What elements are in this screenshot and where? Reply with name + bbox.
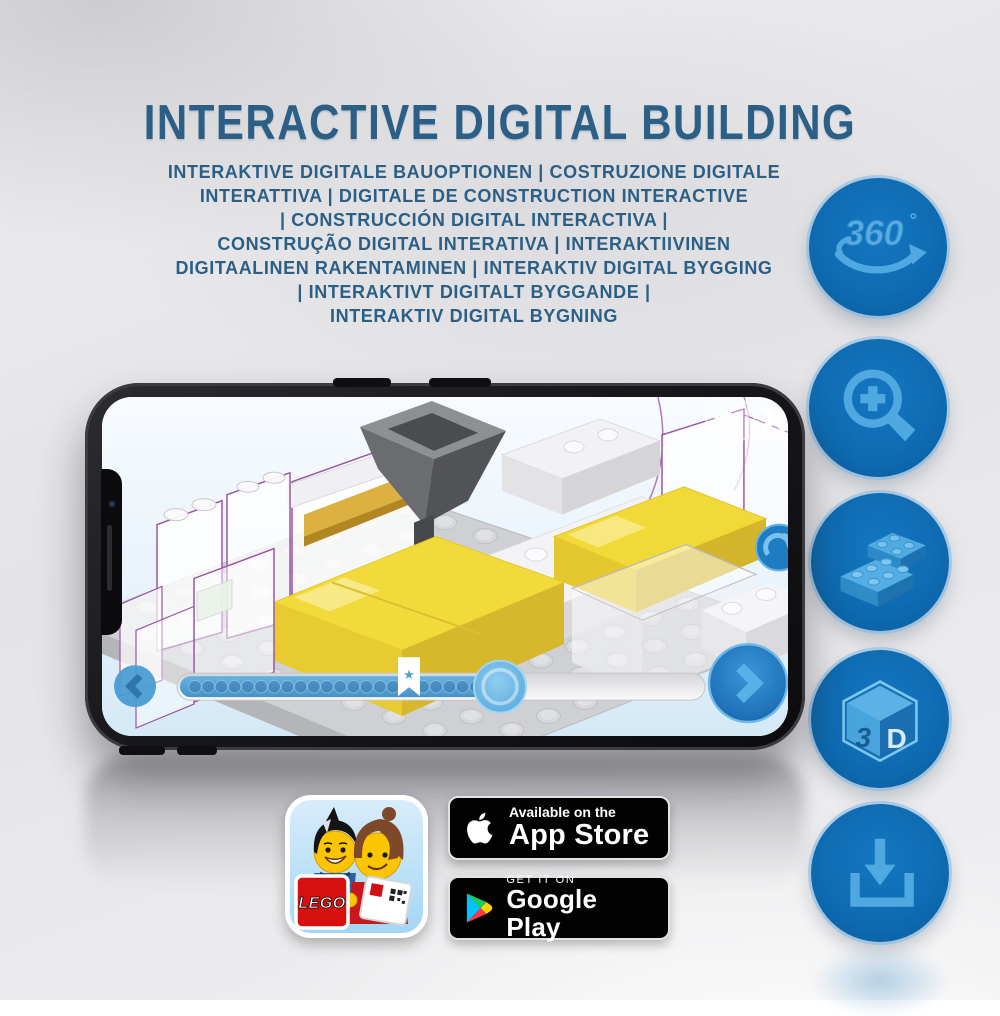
subtitle-line: | CONSTRUCCIÓN DIGITAL INTERACTIVA | (128, 208, 820, 232)
phone-reflection (85, 756, 805, 888)
3d-view-icon: 3 D (811, 650, 949, 788)
lego-bricks-icon (811, 493, 949, 631)
google-play-icon (462, 889, 495, 927)
lego-logo-text: LEGO (298, 895, 345, 912)
front-camera (109, 501, 115, 507)
slider-step-dot (456, 680, 469, 693)
phone: ★ (85, 383, 805, 750)
slider-thumb[interactable] (474, 661, 526, 713)
lego-logo: LEGO (296, 876, 348, 928)
lego-minifigures-art: LEGO (290, 800, 423, 933)
app-store-tagline: Available on the (509, 805, 649, 820)
power-button (333, 378, 391, 387)
download-glyph (828, 821, 932, 925)
360-text: 360 (844, 214, 903, 253)
app-store-name: App Store (509, 820, 649, 850)
slider-step-dot (360, 680, 373, 693)
slider-step-dot (294, 680, 307, 693)
icon-reflection (811, 946, 949, 1016)
close-button[interactable] (754, 399, 788, 439)
subtitle: INTERAKTIVE DIGITALE BAUOPTIONEN | COSTR… (128, 160, 820, 328)
slider-step-dot (308, 680, 321, 693)
slider-step-dot (242, 680, 255, 693)
back-button[interactable] (114, 665, 156, 707)
360-glyph: 360 ° (826, 195, 930, 299)
slider-step-dot (281, 680, 294, 693)
next-button[interactable] (709, 644, 787, 722)
bricks-glyph (828, 510, 932, 614)
slider-step-dot (268, 680, 281, 693)
settings-button[interactable] (706, 399, 748, 441)
slider-step-dot (374, 680, 387, 693)
slider-step-dots (189, 680, 496, 693)
google-play-badge[interactable]: GET IT ON Google Play (448, 876, 670, 940)
slider-step-dot (202, 680, 215, 693)
slider-step-dot (443, 680, 456, 693)
subtitle-line: DIGITAALINEN RAKENTAMINEN | INTERAKTIV D… (128, 256, 820, 280)
slider-step-dot (334, 680, 347, 693)
side-button (429, 378, 491, 387)
apple-icon (462, 807, 498, 849)
bookmark-star-icon: ★ (403, 667, 415, 682)
slider-step-dot (215, 680, 228, 693)
degree-text: ° (910, 209, 917, 230)
slider-step-dot (255, 680, 268, 693)
volume-button (119, 746, 165, 755)
girl-minifigure (343, 807, 412, 925)
slider-step-dot (430, 680, 443, 693)
3d-cube-glyph: 3 D (828, 667, 932, 771)
zoom-in-icon (809, 339, 947, 477)
slider-step-dot (228, 680, 241, 693)
subtitle-line: CONSTRUÇÃO DIGITAL INTERATIVA | INTERAKT… (128, 232, 820, 256)
subtitle-line: | INTERAKTIVT DIGITALT BYGGANDE | (128, 280, 820, 304)
cube-3-text: 3 (856, 722, 872, 753)
magnifier-glyph (826, 356, 930, 460)
360-rotation-icon: 360 ° (809, 178, 947, 316)
google-play-name: Google Play (506, 886, 656, 941)
cube-d-text: D (886, 723, 906, 754)
subtitle-line: INTERAKTIV DIGITAL BYGNING (128, 304, 820, 328)
volume-button (177, 746, 217, 755)
lego-app-icon[interactable]: LEGO (285, 795, 428, 938)
slider-step-dot (321, 680, 334, 693)
page-title: INTERACTIVE DIGITAL BUILDING (0, 94, 1000, 151)
slider-step-dot (387, 680, 400, 693)
page-background: INTERACTIVE DIGITAL BUILDING INTERAKTIVE… (0, 0, 1000, 1000)
instructions-card (360, 876, 413, 925)
lego-build-3d-view[interactable]: ★ (102, 397, 788, 736)
subtitle-line: INTERATTIVA | DIGITALE DE CONSTRUCTION I… (128, 184, 820, 208)
slider-step-dot (347, 680, 360, 693)
slider-step-dot (189, 680, 202, 693)
download-icon (811, 804, 949, 942)
app-store-badge[interactable]: Available on the App Store (448, 796, 670, 860)
subtitle-line: INTERAKTIVE DIGITALE BAUOPTIONEN | COSTR… (128, 160, 820, 184)
phone-notch (101, 469, 122, 635)
phone-screen: ★ (102, 397, 788, 736)
earpiece-slit (107, 525, 112, 591)
